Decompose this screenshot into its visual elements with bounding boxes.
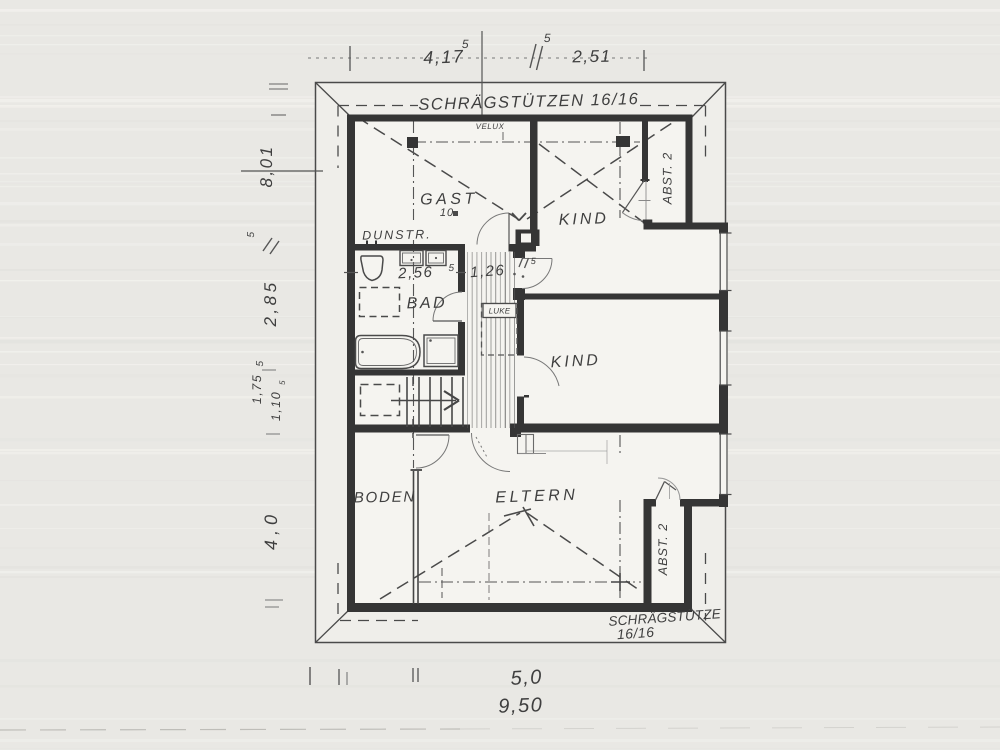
- svg-text:8,01: 8,01: [257, 144, 276, 187]
- svg-text:1,75: 1,75: [250, 374, 264, 404]
- svg-text:5: 5: [246, 230, 257, 237]
- svg-text:2,51: 2,51: [571, 47, 611, 67]
- svg-text:5: 5: [278, 379, 287, 385]
- svg-text:DUNSTR.: DUNSTR.: [362, 227, 432, 242]
- svg-text:5: 5: [448, 263, 455, 274]
- svg-text:BODEN: BODEN: [354, 488, 417, 506]
- svg-text:9,50: 9,50: [498, 694, 544, 718]
- svg-text:VELUX: VELUX: [476, 122, 505, 131]
- svg-text:GAST: GAST: [420, 190, 478, 208]
- svg-text:4,17: 4,17: [423, 46, 465, 67]
- svg-text:ELTERN: ELTERN: [495, 487, 578, 507]
- svg-text:5: 5: [531, 256, 538, 266]
- svg-text:BAD: BAD: [407, 295, 448, 313]
- svg-text:1,10: 1,10: [269, 391, 283, 421]
- svg-text:5,0: 5,0: [510, 666, 543, 690]
- svg-text:ABST. 2: ABST. 2: [661, 152, 675, 205]
- svg-text:5: 5: [462, 37, 470, 51]
- svg-text:5: 5: [255, 359, 266, 366]
- svg-text:4,0: 4,0: [261, 510, 281, 550]
- svg-text:LUKE: LUKE: [489, 307, 511, 316]
- svg-text:KIND: KIND: [550, 352, 601, 372]
- svg-text:16/16: 16/16: [616, 624, 655, 643]
- svg-text:KIND: KIND: [558, 210, 609, 229]
- svg-text:2,56: 2,56: [397, 264, 434, 283]
- svg-text:5: 5: [544, 31, 552, 45]
- svg-text:10: 10: [440, 207, 454, 219]
- svg-text:1,26: 1,26: [470, 262, 506, 281]
- svg-text:2,85: 2,85: [261, 279, 280, 327]
- svg-text:ABST. 2: ABST. 2: [656, 523, 670, 576]
